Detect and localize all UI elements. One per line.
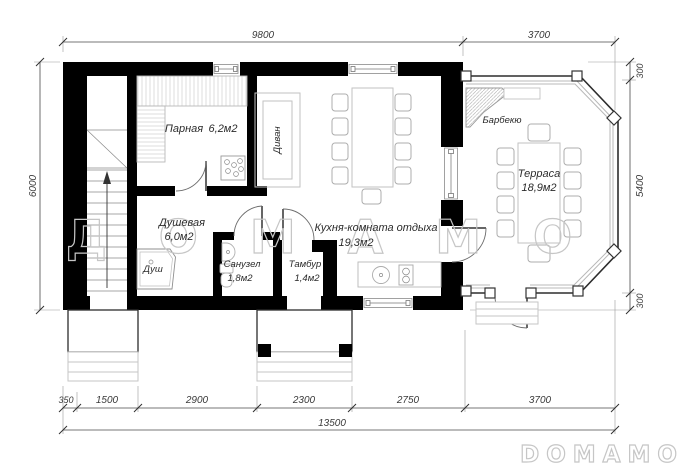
label-tambur-name: Тамбур <box>289 259 322 270</box>
window-kitchen-bottom <box>364 299 412 308</box>
terrace-post <box>573 286 583 296</box>
dim-top-main: 9800 <box>252 30 275 41</box>
dim-bottom-1: 1500 <box>96 395 119 406</box>
label-terrace-area: 18,9м2 <box>521 182 556 194</box>
window-sauna-top <box>214 65 238 74</box>
label-parnaya-name: Парная <box>165 123 203 135</box>
sauna-benches <box>137 76 247 162</box>
stove-icon <box>399 265 413 285</box>
sauna-stove-icon <box>221 156 245 180</box>
terrace-post <box>485 288 495 298</box>
dim-right-bottom: 300 <box>635 293 645 308</box>
terrace-post <box>461 71 471 81</box>
floor-plan-canvas: 9800 3700 6000 300 5400 300 350 1500 290… <box>0 0 690 470</box>
porch-column <box>339 344 352 357</box>
dim-right-middle: 5400 <box>635 174 646 197</box>
label-terrace-name: Терраса <box>518 168 560 180</box>
floor-plan-svg: 9800 3700 6000 300 5400 300 350 1500 290… <box>0 0 690 470</box>
dim-bottom-5: 3700 <box>529 395 552 406</box>
porches <box>68 302 538 381</box>
window-kitchen-right <box>445 148 458 199</box>
dining-table <box>332 88 411 204</box>
sink-icon <box>373 267 390 284</box>
terrace-post <box>526 288 536 298</box>
door-sauna <box>176 161 206 191</box>
terrace-post <box>572 71 582 81</box>
kitchen-counter <box>358 262 441 287</box>
dim-bottom-3: 2300 <box>292 395 316 406</box>
left-porch <box>68 310 138 381</box>
terrace-post <box>461 286 471 296</box>
label-kitchen-area: 19,3м2 <box>338 237 373 249</box>
terrace-steps <box>476 302 538 324</box>
window-kitchen-top <box>349 65 397 74</box>
label-shower: Душ <box>142 264 163 275</box>
dim-bottom-0: 350 <box>58 395 73 405</box>
label-sofa: Диван <box>272 126 283 155</box>
entrance-porch <box>257 310 352 381</box>
watermarks: ДОМАМО DOMAMO <box>66 210 684 468</box>
dim-left-height: 6000 <box>28 174 39 197</box>
label-sanuzel-name: Санузел <box>224 259 262 270</box>
dim-right-top: 300 <box>635 63 645 78</box>
dim-bottom-2: 2900 <box>185 395 209 406</box>
porch-column <box>258 344 271 357</box>
terrace-post <box>607 111 621 125</box>
dim-bottom-total: 13500 <box>318 418 346 429</box>
label-parnaya-area: 6,2м2 <box>209 123 238 135</box>
label-tambur-area: 1,4м2 <box>294 273 320 284</box>
label-barbecue: Барбекю <box>482 115 521 126</box>
label-dushevaya-name: Душевая <box>157 217 205 229</box>
label-sanuzel-area: 1,8м2 <box>227 273 253 284</box>
label-kitchen-name: Кухня-комната отдыха <box>314 222 437 234</box>
watermark-corner: DOMAMO <box>520 442 684 468</box>
dim-bottom-4: 2750 <box>396 395 420 406</box>
dim-top-terrace: 3700 <box>528 30 551 41</box>
label-dushevaya-area: 6,0м2 <box>165 231 194 243</box>
